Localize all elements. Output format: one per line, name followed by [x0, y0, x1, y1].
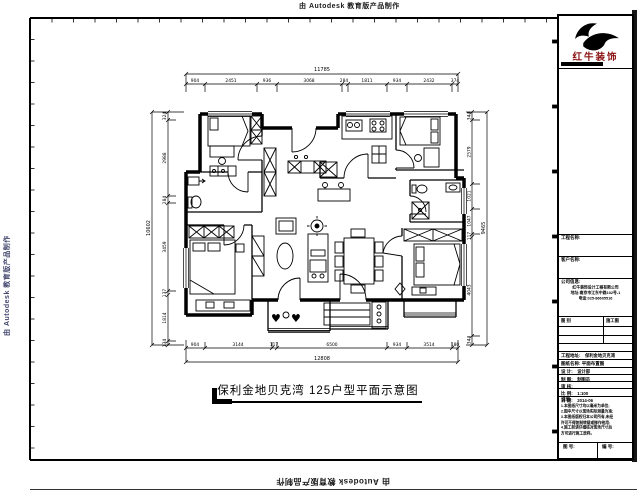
- door-swings: [224, 128, 426, 300]
- table-cell: 施工图: [606, 318, 619, 324]
- field-company-info: 公司信息: 红牛装饰设计工程有限公司 地址:南京市江东中路102号-1 电话:0…: [559, 278, 632, 316]
- svg-text:1047: 1047: [467, 215, 473, 226]
- field-project-name: 工程名称:: [559, 234, 632, 256]
- brand-underline: [561, 62, 603, 66]
- plant-heart-icon: ♥: [271, 312, 281, 325]
- svg-text:1814: 1814: [162, 312, 168, 323]
- plant-heart-icon: ♥: [291, 312, 301, 325]
- floor-plan-svg: ♥ ♥ 11785 904: [0, 0, 637, 492]
- svg-text:3144: 3144: [232, 342, 243, 348]
- svg-text:1021: 1021: [467, 190, 473, 201]
- table-cell: 图 别: [561, 318, 571, 324]
- svg-text:1811: 1811: [361, 78, 372, 84]
- svg-text:284: 284: [340, 78, 349, 84]
- bedroom-right-furniture: [395, 229, 462, 295]
- title-block: 红牛装饰 工程名称: 客户名称: 公司信息: 红牛装饰设计工程有限公司 地址:南…: [557, 14, 634, 460]
- svg-text:934: 934: [393, 78, 402, 84]
- svg-text:137: 137: [162, 289, 168, 298]
- svg-text:3459: 3459: [162, 241, 168, 252]
- svg-text:117: 117: [467, 232, 473, 241]
- field-checker: 审 核:: [559, 374, 632, 381]
- svg-text:934: 934: [393, 342, 402, 348]
- footer-cell-drawing-no: 图 号:: [561, 444, 575, 450]
- field-date: 日 期: 2014-06: [559, 388, 632, 396]
- svg-text:3514: 3514: [423, 342, 434, 348]
- footer-cells: 图 号: 编 号:: [559, 442, 632, 459]
- footer-cell-serial-no: 编 号:: [600, 444, 614, 450]
- notes-block: 说明: 1.本图纸尺寸均以毫米为单位; 2.图中尺寸以现场实际测量为准; 3.本…: [559, 396, 632, 442]
- brand-name: 红牛装饰: [559, 49, 632, 63]
- title-block-table: 图 别 施工图: [559, 316, 632, 343]
- sheet-frame: [30, 10, 637, 490]
- dining-furniture: [335, 229, 383, 293]
- field-sheet-name: 图纸名称: 平面布置图: [559, 351, 632, 359]
- svg-text:344: 344: [467, 112, 473, 121]
- field-client-name: 客户名称:: [559, 256, 632, 278]
- svg-text:374: 374: [451, 78, 460, 84]
- bedroom-topleft-furniture: [208, 116, 262, 176]
- drawing-title: 保利金地贝克湾 125户型平面示意图: [214, 382, 422, 403]
- dim-total-top: 11785: [314, 67, 330, 73]
- svg-text:324: 324: [162, 112, 168, 121]
- svg-text:6500: 6500: [326, 342, 337, 348]
- svg-text:4043: 4043: [467, 284, 473, 295]
- ceiling-lamp-icon: [307, 216, 327, 236]
- bull-logo-icon: [562, 18, 632, 52]
- field-site-address: 工程地址: 保利金地贝克湾: [559, 343, 632, 351]
- svg-text:2579: 2579: [467, 146, 473, 157]
- svg-text:344: 344: [467, 336, 473, 345]
- field-designer: 设 计: 设计部: [559, 359, 632, 367]
- field-scale: 比 例: 1:100: [559, 381, 632, 388]
- svg-text:180: 180: [451, 342, 460, 348]
- svg-text:134: 134: [162, 339, 168, 348]
- dim-total-bottom: 12808: [314, 356, 330, 362]
- svg-text:904: 904: [191, 78, 200, 84]
- svg-text:2988: 2988: [162, 152, 168, 163]
- company-info-lines: 红牛装饰设计工程有限公司 地址:南京市江东中路102号-1 电话:025-866…: [562, 285, 629, 302]
- title-block-blank: [559, 68, 632, 234]
- dim-total-left: 10602: [146, 220, 152, 236]
- svg-text:936: 936: [263, 78, 272, 84]
- svg-text:2432: 2432: [423, 78, 434, 84]
- hall-shaft-column: [264, 148, 276, 196]
- kitchen-fixtures: [320, 116, 392, 177]
- dim-total-right: 9465: [481, 222, 487, 235]
- field-draftsman: 制 图: 制图员: [559, 367, 632, 374]
- svg-text:2451: 2451: [225, 78, 236, 84]
- svg-text:3068: 3068: [303, 78, 314, 84]
- bedroom-topright-furniture: [400, 117, 440, 167]
- svg-text:284: 284: [162, 196, 168, 205]
- drawing-sheet: 由 Autodesk 教育版产品制作 由 Autodesk 教育版产品制作 由 …: [0, 0, 637, 492]
- svg-text:904: 904: [191, 342, 200, 348]
- bathroom-left-fixtures: [188, 177, 205, 208]
- svg-text:117: 117: [270, 342, 279, 348]
